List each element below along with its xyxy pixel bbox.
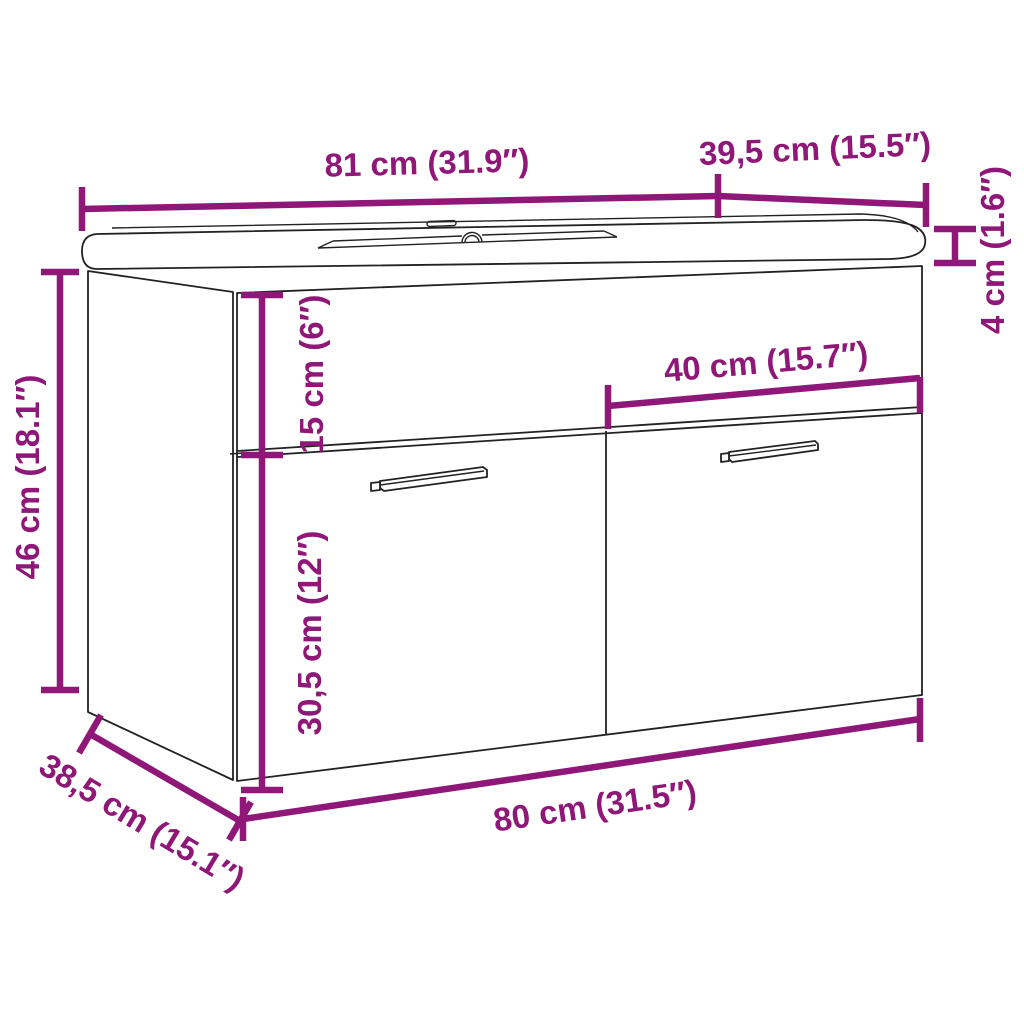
- dimension-top-width: 81 cm (31.9″): [82, 141, 718, 231]
- cabinet-side-panel: [88, 271, 233, 780]
- dimension-label-cabinet-width: 80 cm (31.5″): [491, 772, 699, 838]
- dimension-basin-thickness: 4 cm (1.6″): [934, 166, 1011, 334]
- dimension-label-apron-height: 15 cm (6″): [293, 295, 330, 454]
- dimension-label-top-depth: 39,5 cm (15.5″): [698, 125, 932, 172]
- dimension-label-door-height: 30,5 cm (12″): [291, 531, 328, 736]
- dimension-label-basin-thickness: 4 cm (1.6″): [974, 166, 1011, 334]
- dimension-diagram: 81 cm (31.9″) 39,5 cm (15.5″) 4 cm (1.6″…: [0, 0, 1024, 1024]
- vanity-cabinet-drawing: [82, 214, 925, 781]
- basin-slab: [82, 220, 925, 269]
- dimension-label-top-width: 81 cm (31.9″): [324, 141, 530, 183]
- dimension-cabinet-height: 46 cm (18.1″): [9, 272, 79, 690]
- dimension-top-depth: 39,5 cm (15.5″): [698, 125, 932, 227]
- vanity-dimension-drawing: 81 cm (31.9″) 39,5 cm (15.5″) 4 cm (1.6″…: [0, 0, 1024, 1024]
- dimension-label-cabinet-height: 46 cm (18.1″): [9, 375, 46, 580]
